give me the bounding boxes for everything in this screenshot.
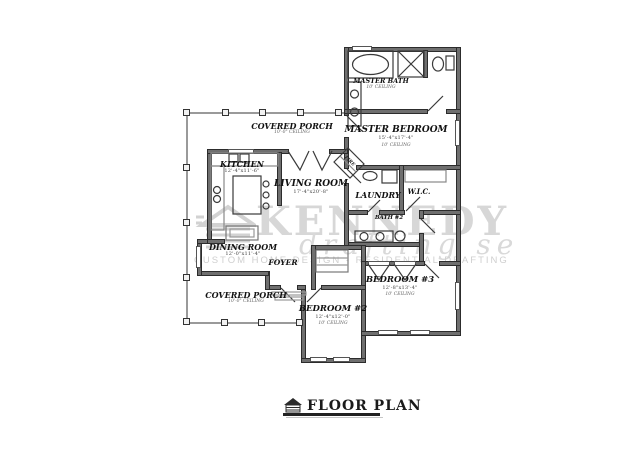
room-label-bedroom-3: BEDROOM #3 12'-8"x13'-4" 10' CEILING [366, 276, 434, 299]
room-label-covered-porch-top: COVERED PORCH 10'-0" CEILING [251, 122, 333, 137]
house-icon-body [286, 405, 300, 412]
room-label-kitchen: KITCHEN 12'-4"x11'-6" [220, 160, 264, 176]
stool [263, 203, 269, 209]
room-label-covered-porch-bottom: COVERED PORCH 10'-0" CEILING [205, 291, 287, 306]
room-label-laundry: LAUNDRY [355, 191, 400, 199]
kitchen-counter [211, 166, 224, 230]
toilet [395, 231, 405, 241]
closet [316, 250, 348, 272]
room-dims: 12'-0"x11'-4" [209, 251, 277, 259]
room-dims: 12'-4"x12'-0" [299, 314, 367, 322]
room-ceiling: 10' CEILING [366, 292, 434, 299]
room-name: W.I.C. [408, 188, 431, 195]
room-ceiling: 10' CEILING [299, 321, 367, 328]
stool [263, 181, 269, 187]
bathtub [353, 55, 389, 75]
floor-plan-sheet: KENNEDY drafting se CUSTOM HOME DESIGN -… [0, 0, 628, 471]
room-label-bedroom-2: BEDROOM #2 12'-4"x12'-0" 10' CEILING [299, 305, 367, 328]
closet-rod [405, 170, 446, 182]
drawing-title: FLOOR PLAN [307, 398, 422, 414]
room-dims: 15'-4"x17'-4" [344, 135, 447, 143]
room-ceiling: 10'-0" CEILING [205, 299, 287, 306]
room-name: MASTER BEDROOM [344, 126, 447, 135]
room-label-wic: W.I.C. [408, 188, 431, 195]
room-name: BEDROOM #3 [366, 276, 434, 285]
room-dims: 12'-8"x13'-4" [366, 285, 434, 293]
title-underline-shadow [286, 417, 383, 419]
door-swing [307, 288, 321, 302]
toilet [433, 57, 444, 71]
room-label-master-bath: MASTER BATH 10' CEILING [353, 78, 409, 91]
door-swing [406, 197, 420, 211]
room-ceiling: 10' CEILING [344, 143, 447, 150]
cabinet-inner [230, 229, 254, 237]
cabinet [226, 226, 258, 240]
room-name: BATH #2 [375, 216, 403, 222]
house-icon [283, 397, 303, 413]
room-name: DINING ROOM [209, 243, 277, 251]
room-dims: 17'-4"x20'-8" [274, 189, 348, 197]
room-name: MASTER BATH [353, 78, 409, 85]
sink [351, 108, 359, 116]
door-swing [421, 219, 435, 233]
room-label-living-room: LIVING ROOM 17'-4"x20'-8" [274, 180, 348, 197]
washer [382, 170, 397, 183]
door-swing [368, 200, 380, 212]
room-name: LIVING ROOM [274, 180, 348, 189]
door-swing [347, 169, 361, 183]
room-label-foyer: FOYER [268, 259, 297, 267]
room-dims: 12'-4"x11'-6" [220, 168, 264, 176]
bath2-vanity [355, 231, 393, 242]
room-name: LAUNDRY [355, 191, 400, 199]
room-ceiling: 10' CEILING [353, 85, 409, 92]
room-name: COVERED PORCH [251, 122, 333, 130]
room-label-dining-room: DINING ROOM 12'-0"x11'-4" [209, 243, 277, 259]
door-swing [428, 96, 443, 111]
room-label-bath-2: BATH #2 [375, 216, 403, 222]
house-icon-roof [284, 398, 302, 405]
french-door [313, 151, 332, 170]
cooktop-burner [214, 187, 221, 194]
french-door [288, 151, 309, 170]
room-name: FOYER [268, 259, 297, 267]
room-name: BEDROOM #2 [299, 305, 367, 314]
sink [360, 233, 368, 241]
kitchen-island [233, 176, 261, 214]
toilet-tank [446, 56, 454, 70]
sink [376, 233, 384, 241]
title-underline [283, 413, 380, 416]
cooktop-burner [214, 196, 221, 203]
utility-sink [363, 172, 377, 181]
room-ceiling: 10'-0" CEILING [251, 130, 333, 137]
room-name: KITCHEN [220, 160, 264, 168]
room-label-master-bedroom: MASTER BEDROOM 15'-4"x17'-4" 10' CEILING [344, 126, 447, 149]
stool [263, 192, 269, 198]
room-name: COVERED PORCH [205, 291, 287, 299]
